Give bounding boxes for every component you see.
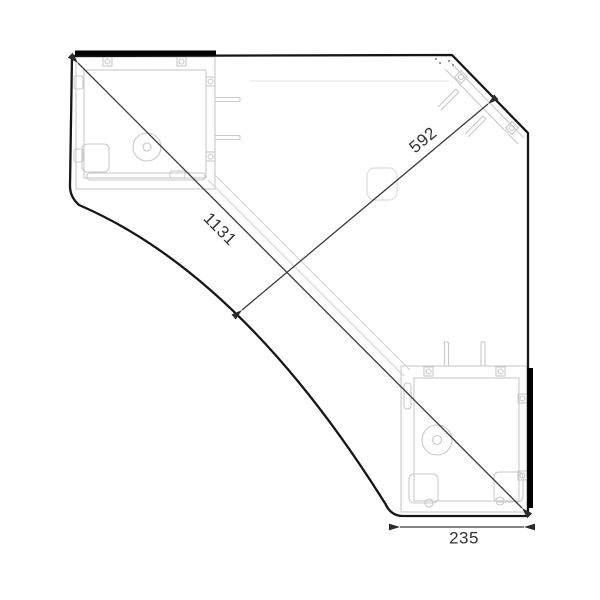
- pedestal-tl-bottom-rail: [87, 173, 205, 180]
- technical-drawing-canvas: 1131 592 235: [0, 0, 600, 600]
- corner-tick-marks: [435, 58, 454, 66]
- pedestal-tl-prongs: [215, 98, 240, 140]
- chamfer-rail-bolt-2: [506, 122, 519, 135]
- pedestal-tl-grommet-center-icon: [143, 143, 151, 151]
- dimension-lines: [78, 63, 524, 527]
- pedestal-tl-grommet-icon: [133, 133, 161, 161]
- top-edge-panel: [75, 51, 216, 56]
- pedestal-tl-foot-plate: [82, 144, 109, 172]
- dimension-label-bottom-width: 235: [449, 529, 479, 548]
- pedestal-tl-inner-panel: [84, 70, 206, 178]
- pedestal-br-prongs: [445, 342, 486, 366]
- pedestal-br-inner-panel: [414, 378, 519, 501]
- corner-desk-drawing: 1131 592 235: [0, 0, 600, 600]
- pedestal-bottom-right: [401, 342, 527, 512]
- dimension-label-diagonal-short: 592: [405, 123, 440, 157]
- pedestal-br-grommet-icon: [422, 425, 452, 455]
- pedestal-tl-bolts: [103, 57, 215, 161]
- pedestal-br-foot-plate-1: [409, 474, 438, 503]
- right-edge-panel: [528, 368, 534, 508]
- dimension-line-diagonal-long: [78, 63, 522, 508]
- pedestal-br-grommet-center-icon: [433, 436, 442, 445]
- pedestal-br-body: [401, 366, 527, 512]
- pedestal-tl-left-tab-1: [74, 76, 83, 89]
- cross-rail: [208, 174, 410, 376]
- chamfer-rail: [438, 63, 524, 144]
- pedestal-tl-body: [76, 57, 215, 189]
- pedestal-tl-latch: [170, 171, 185, 178]
- pedestal-top-left: [74, 57, 240, 189]
- chamfer-rail-prongs: [438, 89, 486, 137]
- dimension-line-diagonal-short: [242, 104, 488, 310]
- pedestal-br-bolts: [424, 367, 527, 507]
- dimension-label-diagonal-long: 1131: [200, 209, 241, 250]
